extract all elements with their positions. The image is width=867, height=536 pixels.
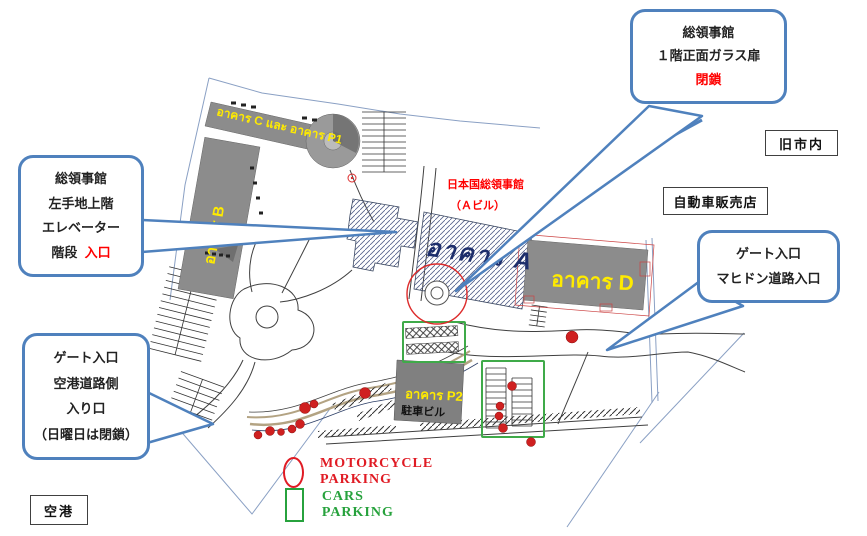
callout-line: 入り口: [66, 402, 105, 416]
legend-row-cars: CARS PARKING: [285, 488, 402, 522]
callout-entrance: 総領事館 左手地上階 エレベーター 階段 入口: [18, 155, 144, 277]
parking-hatch-strips: [405, 326, 458, 355]
callout-line: ゲート入口: [53, 351, 118, 365]
legend-motorcycle-label: MOTORCYCLE PARKING: [320, 456, 443, 488]
callout-line-part: 階段: [51, 245, 77, 260]
callout-gate-airport: ゲート入口 空港道路側 入り口 （日曜日は閉鎖）: [22, 333, 150, 460]
building-d-label: อาคาร D: [551, 268, 635, 295]
callout-line: 総領事館: [55, 172, 107, 186]
label-box-car-dealer: 自動車販売店: [663, 187, 768, 215]
legend-row-motorcycle: MOTORCYCLE PARKING: [283, 456, 443, 488]
callout-line: 左手地上階: [48, 197, 113, 211]
callout-line: １階正面ガラス扉: [657, 49, 761, 63]
label-box-airport: 空港: [30, 495, 88, 525]
callout-line: ゲート入口: [736, 247, 801, 261]
callout-line: 階段 入口: [51, 246, 110, 260]
site-map-page: 日本国総領事館 （Ａビル） อาคาร A อาคาร B อาคาร C แล…: [0, 0, 867, 536]
callout-line-closed: 閉鎖: [695, 73, 721, 87]
motorcycle-parking-icon: [283, 457, 304, 488]
callout-line: 空港道路側: [53, 377, 118, 391]
callout-gate-mahidol: ゲート入口 マヒドン道路入口: [697, 230, 840, 303]
consulate-red-label-2: （Ａビル）: [450, 198, 505, 212]
callout-line-entrance-red: 入口: [85, 245, 111, 260]
tail-gate-airport: [147, 392, 213, 443]
callout-line: 総領事館: [682, 26, 734, 40]
label-box-old-town: 旧市内: [765, 130, 838, 156]
callout-line: エレベーター: [42, 221, 120, 235]
building-p2-label: อาคาร P2: [405, 386, 463, 404]
callout-line: （日曜日は閉鎖）: [34, 428, 138, 442]
callout-line: マヒドン道路入口: [716, 272, 820, 286]
label-text: 旧市内: [779, 134, 824, 153]
legend-cars-label: CARS PARKING: [322, 489, 402, 521]
callout-glass-door: 総領事館 １階正面ガラス扉 閉鎖: [630, 9, 787, 104]
cars-parking-icon: [285, 488, 304, 522]
label-text: 空港: [44, 501, 74, 520]
label-text: 自動車販売店: [673, 192, 757, 211]
consulate-red-label: 日本国総領事館: [447, 177, 524, 191]
